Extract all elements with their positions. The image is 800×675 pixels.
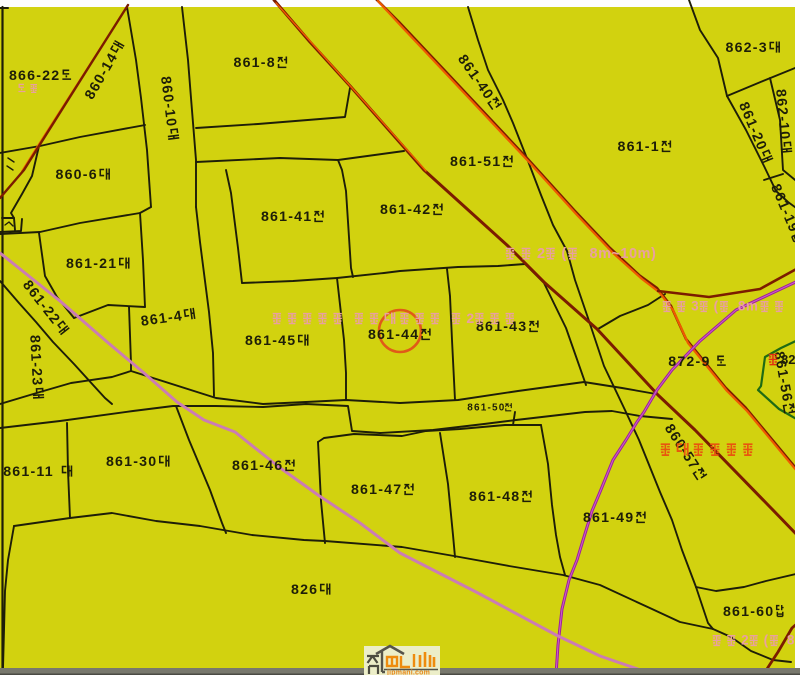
svg-text:826: 826 xyxy=(291,582,318,598)
svg-text:8: 8 xyxy=(787,633,795,648)
svg-text:2: 2 xyxy=(466,310,474,326)
svg-text:861-49: 861-49 xyxy=(583,510,634,526)
svg-text:861-11: 861-11 xyxy=(3,464,54,480)
svg-text:861-21: 861-21 xyxy=(66,256,117,272)
svg-text:872-9: 872-9 xyxy=(668,354,710,370)
svg-text:862-3: 862-3 xyxy=(726,40,768,56)
svg-text:(: ( xyxy=(714,299,719,314)
svg-text:861-43: 861-43 xyxy=(476,319,527,335)
svg-text:861-42: 861-42 xyxy=(380,202,431,218)
svg-text:861-44: 861-44 xyxy=(368,327,419,343)
svg-text:3: 3 xyxy=(691,299,699,314)
svg-text:861-30: 861-30 xyxy=(106,454,157,470)
svg-text:861-60: 861-60 xyxy=(723,604,774,620)
svg-text:861-51: 861-51 xyxy=(450,154,501,170)
svg-text:860-6: 860-6 xyxy=(56,167,98,183)
svg-text:861-46: 861-46 xyxy=(232,458,283,474)
svg-text:861-50: 861-50 xyxy=(467,403,505,414)
svg-text:2: 2 xyxy=(741,633,749,648)
svg-text:jipmani.com: jipmani.com xyxy=(386,670,430,675)
svg-text:(: ( xyxy=(764,633,769,648)
svg-text:861-41: 861-41 xyxy=(261,209,312,225)
svg-text:861-8: 861-8 xyxy=(234,55,276,71)
svg-text:2: 2 xyxy=(537,246,546,262)
svg-text:861-45: 861-45 xyxy=(245,333,296,349)
svg-text:861-23: 861-23 xyxy=(26,335,45,387)
svg-text:866-22: 866-22 xyxy=(9,68,60,84)
svg-text:(: ( xyxy=(561,246,566,262)
svg-text:861-47: 861-47 xyxy=(351,482,402,498)
svg-text:82: 82 xyxy=(781,352,795,367)
svg-text:861-1: 861-1 xyxy=(618,139,660,155)
svg-text:8m: 8m xyxy=(738,299,759,314)
svg-text:8m~10m): 8m~10m) xyxy=(590,246,657,262)
svg-text:861-48: 861-48 xyxy=(469,489,520,505)
